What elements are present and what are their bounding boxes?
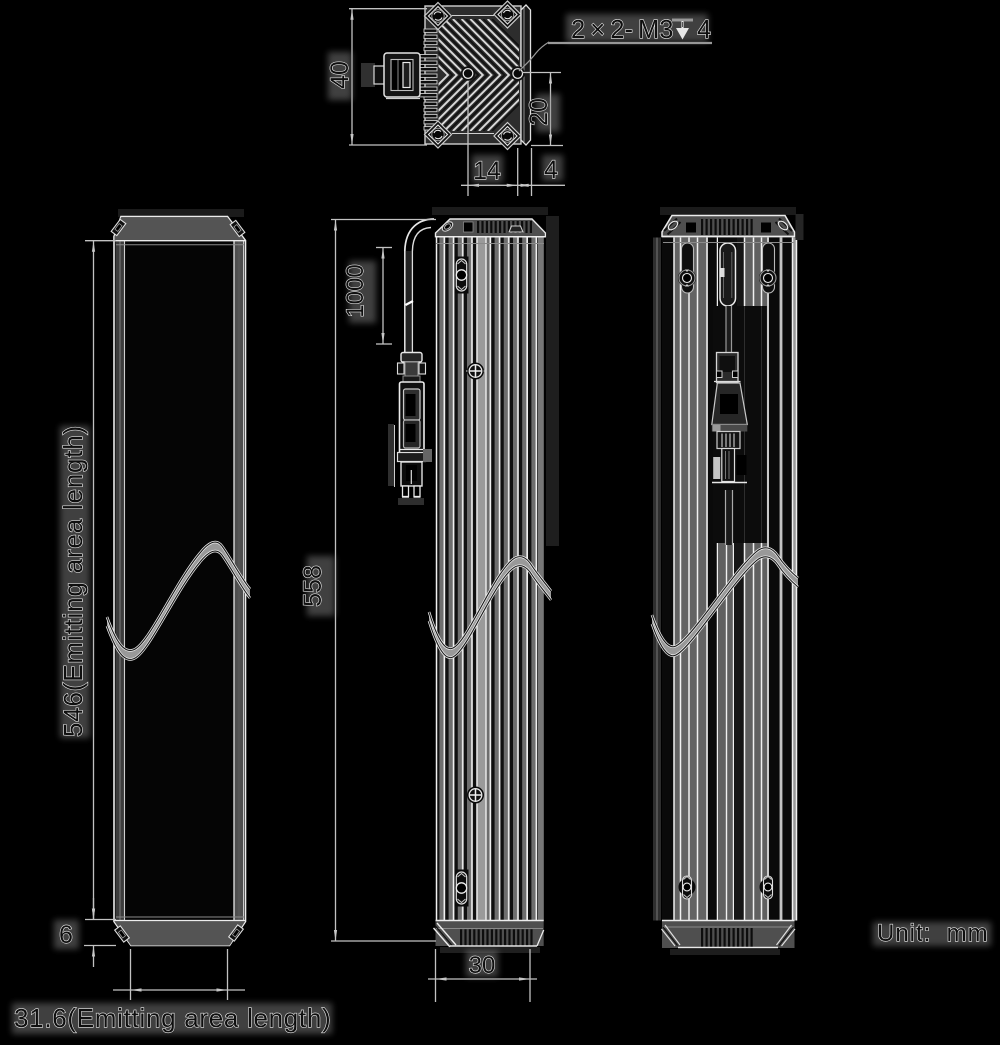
- svg-text:6: 6: [59, 921, 73, 949]
- svg-text:1000: 1000: [342, 264, 369, 317]
- svg-text:4: 4: [697, 16, 711, 44]
- svg-text:2 × 2- M3: 2 × 2- M3: [571, 16, 674, 44]
- svg-text:558: 558: [299, 565, 327, 607]
- svg-text:14: 14: [473, 157, 501, 185]
- svg-text:546(Emitting area length): 546(Emitting area length): [58, 425, 88, 737]
- svg-text:4: 4: [544, 156, 558, 184]
- svg-text:31.6(Emitting area length): 31.6(Emitting area length): [14, 1003, 331, 1033]
- svg-text:30: 30: [469, 952, 496, 979]
- svg-text:Unit: mm: Unit: mm: [877, 920, 989, 947]
- svg-text:40: 40: [326, 61, 354, 89]
- svg-text:20: 20: [525, 98, 553, 126]
